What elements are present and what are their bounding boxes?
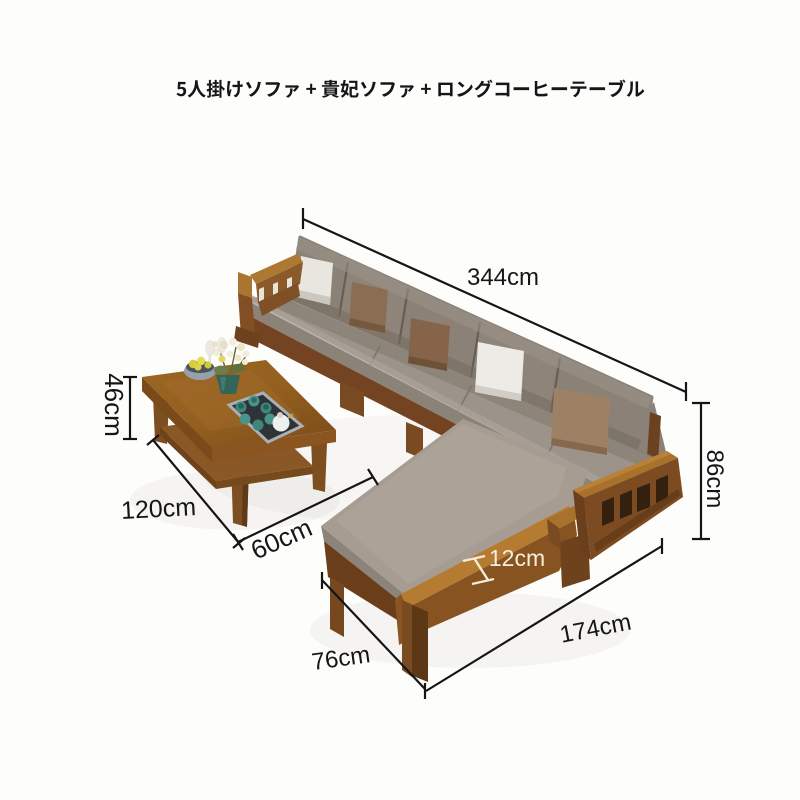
svg-text:12cm: 12cm — [489, 545, 545, 571]
svg-text:344cm: 344cm — [467, 264, 539, 291]
svg-text:86cm: 86cm — [701, 450, 728, 509]
svg-text:120cm: 120cm — [120, 493, 196, 525]
svg-text:46cm: 46cm — [99, 373, 129, 437]
